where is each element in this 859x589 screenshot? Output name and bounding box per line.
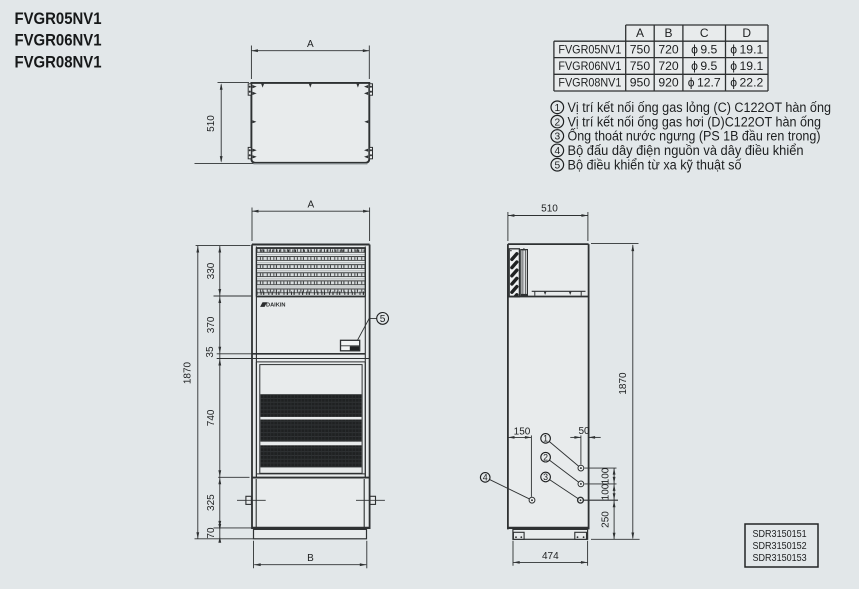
svg-text:Ống thoát nước ngưng (PS 1B đầ: Ống thoát nước ngưng (PS 1B đầu ren tron…	[568, 127, 821, 145]
svg-text:325: 325	[206, 494, 217, 511]
svg-text:100: 100	[600, 483, 611, 500]
svg-text:ϕ 9.5: ϕ 9.5	[691, 42, 717, 56]
svg-text:B: B	[307, 553, 314, 564]
svg-text:A: A	[307, 39, 314, 50]
svg-text:750: 750	[630, 59, 651, 73]
svg-text:740: 740	[206, 409, 217, 426]
svg-text:330: 330	[206, 262, 217, 279]
svg-text:920: 920	[658, 76, 679, 90]
svg-text:250: 250	[600, 511, 611, 528]
svg-text:FVGR06NV1: FVGR06NV1	[558, 59, 621, 73]
svg-text:FVGR08NV1: FVGR08NV1	[15, 53, 102, 71]
svg-text:SDR3150153: SDR3150153	[753, 553, 808, 564]
svg-text:720: 720	[658, 42, 679, 56]
svg-text:50: 50	[578, 426, 590, 437]
svg-text:ϕ 19.1: ϕ 19.1	[730, 59, 763, 73]
svg-text:ϕ 12.7: ϕ 12.7	[688, 76, 721, 90]
svg-text:ϕ 22.2: ϕ 22.2	[730, 76, 763, 90]
svg-text:474: 474	[542, 551, 559, 562]
svg-text:1: 1	[543, 434, 548, 444]
svg-text:FVGR05NV1: FVGR05NV1	[558, 42, 621, 56]
svg-text:1870: 1870	[183, 361, 194, 384]
svg-text:5: 5	[380, 314, 386, 325]
svg-text:750: 750	[630, 42, 651, 56]
svg-text:3: 3	[543, 472, 548, 482]
svg-text:FVGR08NV1: FVGR08NV1	[558, 76, 621, 90]
svg-text:2: 2	[554, 117, 560, 128]
svg-text:510: 510	[206, 115, 217, 132]
svg-text:100: 100	[600, 467, 611, 484]
svg-text:SDR3150152: SDR3150152	[753, 541, 807, 552]
svg-text:4: 4	[483, 473, 488, 483]
svg-text:Bộ điều khiển từ xa kỹ thuật s: Bộ điều khiển từ xa kỹ thuật số	[568, 157, 742, 173]
svg-text:370: 370	[206, 316, 217, 333]
svg-text:ϕ 9.5: ϕ 9.5	[691, 59, 717, 73]
svg-text:35: 35	[205, 346, 216, 358]
svg-text:DAIKIN: DAIKIN	[266, 303, 286, 309]
svg-text:510: 510	[541, 204, 558, 215]
svg-text:FVGR06NV1: FVGR06NV1	[15, 32, 102, 50]
svg-text:B: B	[665, 26, 673, 40]
svg-text:A: A	[307, 199, 314, 210]
svg-text:4: 4	[554, 146, 560, 157]
svg-text:70: 70	[206, 527, 217, 539]
svg-text:SDR3150151: SDR3150151	[753, 529, 807, 540]
svg-text:A: A	[636, 26, 644, 40]
svg-text:720: 720	[658, 59, 679, 73]
svg-text:5: 5	[554, 160, 560, 171]
svg-text:150: 150	[514, 426, 531, 437]
svg-text:ϕ 19.1: ϕ 19.1	[730, 42, 763, 56]
svg-text:D: D	[742, 26, 751, 40]
svg-text:2: 2	[543, 452, 548, 462]
svg-text:950: 950	[630, 76, 651, 90]
svg-text:1870: 1870	[618, 372, 629, 395]
svg-text:1: 1	[554, 103, 560, 114]
svg-text:3: 3	[554, 132, 560, 143]
svg-text:FVGR05NV1: FVGR05NV1	[15, 10, 102, 28]
svg-text:C: C	[700, 26, 709, 40]
